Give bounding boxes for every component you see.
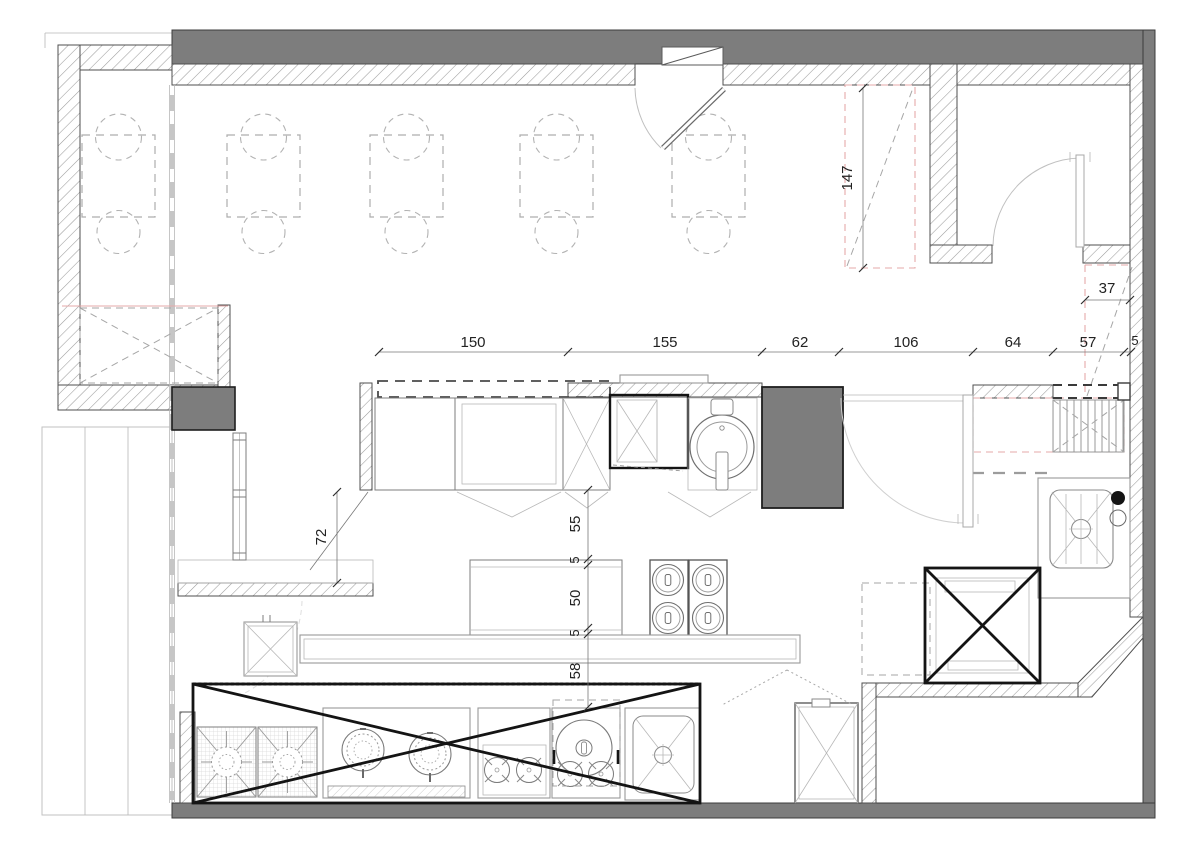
diagonal-wall <box>1078 617 1143 697</box>
stockpot-range <box>552 700 620 798</box>
wok-range <box>323 708 470 798</box>
dim-label-64: 64 <box>1005 334 1022 351</box>
bottom-wall-band <box>172 803 1155 818</box>
dining-table <box>370 114 443 254</box>
radiator-panel <box>233 433 246 560</box>
kitchen-partition-wall <box>360 383 372 490</box>
four-burner-stove <box>650 560 727 637</box>
fridge-cabinet <box>375 398 455 490</box>
dining-table <box>82 114 155 254</box>
bar-counter-top <box>178 560 373 583</box>
fryer-unit <box>197 727 256 797</box>
dim-label-57: 57 <box>1080 334 1097 351</box>
dining-table <box>520 114 593 254</box>
dim-label-5b: 5 <box>567 629 582 636</box>
dim-label-147: 147 <box>839 165 856 190</box>
dim-label-55: 55 <box>567 516 584 533</box>
dim-label-5a: 5 <box>567 556 582 563</box>
dining-table <box>227 114 300 254</box>
island-group <box>300 560 800 663</box>
pot-sink <box>625 708 700 800</box>
dining-area <box>82 114 745 254</box>
dim-label-5-right: 5 <box>1131 333 1138 348</box>
dining-table <box>672 114 745 254</box>
storage-room-left-wall <box>930 64 957 263</box>
bar-counter-hatch <box>178 583 373 596</box>
dim-label-72: 72 <box>313 529 330 546</box>
cooking-line <box>193 684 700 803</box>
wash-sink <box>1038 478 1130 598</box>
dim-label-37: 37 <box>1099 280 1116 297</box>
dim-label-58: 58 <box>567 663 584 680</box>
dim-label-50: 50 <box>567 590 584 607</box>
outdoor-deck <box>42 427 172 815</box>
dim-label-150: 150 <box>460 334 485 351</box>
dishwasher <box>610 395 688 468</box>
round-boiler <box>688 398 757 490</box>
service-block-left <box>172 387 235 430</box>
shelf-over-counter <box>620 375 708 383</box>
floor-plan: 150 155 62 106 64 57 5 55 5 50 5 58 72 1… <box>0 0 1200 848</box>
storage-room-door <box>993 152 1090 247</box>
prep-island <box>470 560 622 637</box>
base-cabinet <box>455 398 563 490</box>
long-counter <box>300 635 800 663</box>
hand-sink-table <box>722 670 858 803</box>
counter-hatch-b <box>973 385 1053 398</box>
floor-plan-page: 150 155 62 106 64 57 5 55 5 50 5 58 72 1… <box>0 0 1200 848</box>
right-wall-band <box>1143 30 1155 818</box>
dim-label-155: 155 <box>652 334 677 351</box>
demolition-cross-square <box>925 568 1040 683</box>
faucet-dot <box>1111 491 1125 505</box>
kitchen-door <box>841 395 978 527</box>
service-block-62 <box>762 387 843 508</box>
waste-bin <box>244 615 297 676</box>
dim-label-106: 106 <box>893 334 918 351</box>
dim-label-62: 62 <box>792 334 809 351</box>
